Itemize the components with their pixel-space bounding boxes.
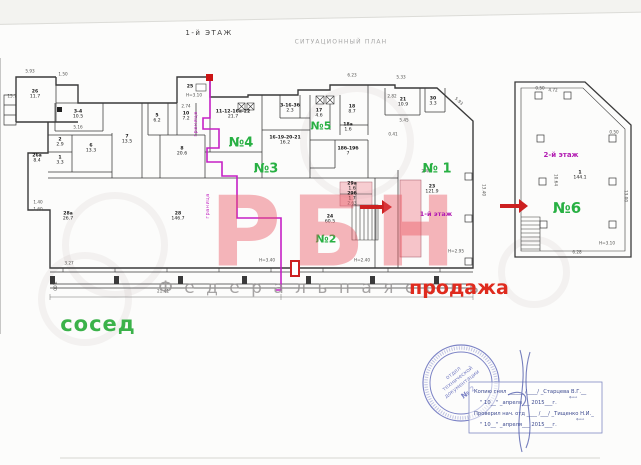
floor2-label: 2-й этаж <box>543 151 578 159</box>
dimension-label: 4.72 <box>548 88 557 93</box>
dimension-label: Н=3.10 <box>599 241 615 246</box>
room-label: 820.6 <box>177 147 187 158</box>
dimension-label: 13.40 <box>482 184 487 196</box>
room-label: 16-19-20-2116.2 <box>269 136 300 147</box>
room-label: 303.3 <box>429 97 436 108</box>
room-label: 28а26.7 <box>63 212 73 223</box>
dimension-label: 3.00 <box>53 281 58 290</box>
dimension-label: 13.00 <box>624 190 629 202</box>
room-label: 26а8.4 <box>32 154 42 165</box>
dimension-label: 5.16 <box>73 125 82 130</box>
dimension-label: 1.60 <box>33 207 42 212</box>
room-label: 2110.9 <box>398 98 408 109</box>
dimension-label: 6.23 <box>347 73 356 78</box>
dimension-label: 0.41 <box>388 132 397 137</box>
room-label: 3-410.5 <box>73 110 83 121</box>
dimension-label: 15.7 <box>7 94 16 99</box>
room-label: 613.3 <box>86 144 96 155</box>
room-label: 56.2 <box>153 114 160 125</box>
unit-number-label: №6 <box>553 199 581 217</box>
dimension-label: 0.50 <box>535 86 544 91</box>
dimension-label: Н=3.10 <box>186 93 202 98</box>
room-label: 11-12-16а-2221.7 <box>216 110 250 121</box>
sale-label: продажа <box>409 277 509 299</box>
watermark-brand: РБН <box>210 184 466 281</box>
floor1-label: 1-й этаж <box>420 210 453 218</box>
dimension-label: 5.45 <box>399 118 408 123</box>
room-label: 3-16-3б2.3 <box>280 104 300 115</box>
room-label: 18а1.6 <box>343 123 353 134</box>
room-label: 188.7 <box>348 105 355 116</box>
neighbor-label: сосед <box>60 312 136 336</box>
dimension-label: 3.27 <box>64 261 73 266</box>
unit-number-label: № 1 <box>422 162 451 177</box>
boundary-text-bottom: граница <box>205 193 211 218</box>
room-label: 174.6 <box>315 109 322 120</box>
dimension-label: 1.40 <box>33 200 42 205</box>
dimension-label: 10.64 <box>554 174 559 186</box>
dimension-label: 1.50 <box>58 72 67 77</box>
unit-number-label: №5 <box>311 120 332 133</box>
room-label: 28146.7 <box>171 212 184 223</box>
room-label: 22.9 <box>56 138 63 149</box>
unit-number-label: №4 <box>229 136 254 151</box>
room-label: 2611.7 <box>30 90 40 101</box>
dimension-label: 5.93 <box>25 69 34 74</box>
room-label: 107.2 <box>182 112 189 123</box>
dimension-label: 5.93 <box>454 96 464 106</box>
dimension-label: 0.50 <box>609 130 618 135</box>
room-label: 13.3 <box>56 156 63 167</box>
boundary-text-top: граница <box>193 111 199 136</box>
unit-number-label: №3 <box>254 162 279 177</box>
room-label: 1144.1 <box>573 171 586 182</box>
room-label: 25 <box>187 84 193 89</box>
dimension-label: 5.33 <box>396 75 405 80</box>
room-label: 713.5 <box>122 135 132 146</box>
room-label: 18б-19б7 <box>337 147 358 158</box>
scanned-floor-plan-page: 1-й ЭТАЖ СИТУАЦИОННЫЙ ПЛАН <box>0 0 641 465</box>
dimension-label: 6.28 <box>572 250 581 255</box>
dimension-label: 2.74 <box>181 104 190 109</box>
dimension-label: 2.82 <box>387 94 396 99</box>
